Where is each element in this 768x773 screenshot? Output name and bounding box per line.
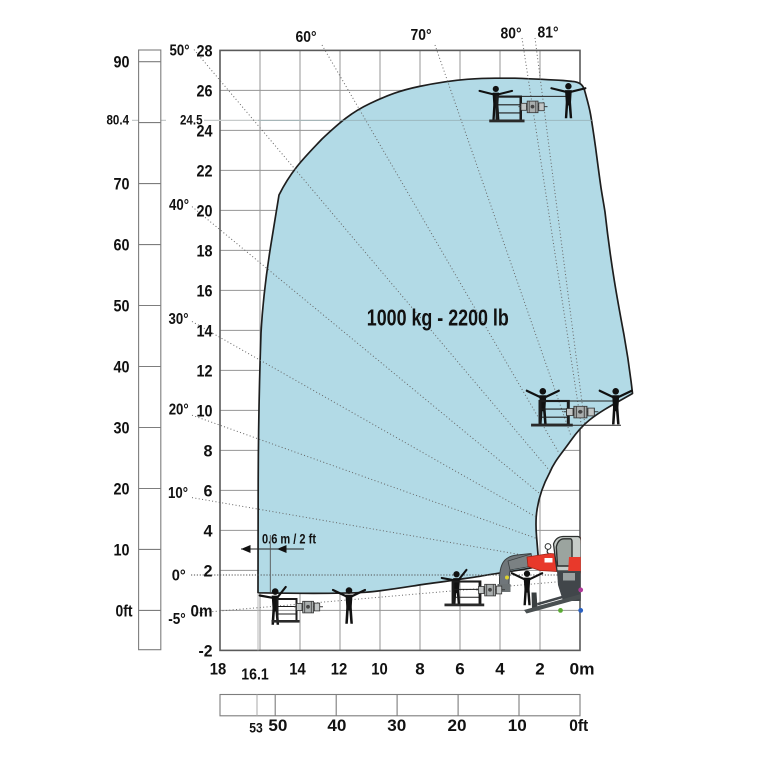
svg-text:12: 12 bbox=[331, 660, 348, 679]
svg-text:20: 20 bbox=[448, 716, 467, 735]
svg-text:2: 2 bbox=[204, 561, 213, 580]
svg-text:90: 90 bbox=[114, 53, 130, 72]
svg-text:0m: 0m bbox=[570, 660, 595, 679]
svg-text:-5°: -5° bbox=[168, 611, 186, 628]
svg-text:4: 4 bbox=[204, 521, 214, 540]
svg-text:0ft: 0ft bbox=[569, 716, 588, 735]
svg-text:10: 10 bbox=[508, 716, 527, 735]
svg-text:50°: 50° bbox=[170, 43, 190, 60]
svg-text:10: 10 bbox=[114, 540, 130, 559]
svg-text:20: 20 bbox=[114, 480, 130, 499]
svg-text:-2: -2 bbox=[199, 641, 213, 660]
svg-text:16: 16 bbox=[197, 281, 213, 300]
svg-text:40: 40 bbox=[114, 358, 130, 377]
svg-text:18: 18 bbox=[197, 241, 213, 260]
svg-text:18: 18 bbox=[210, 660, 227, 679]
svg-text:30: 30 bbox=[387, 716, 406, 735]
svg-text:70°: 70° bbox=[411, 27, 432, 44]
svg-text:1000 kg - 2200 lb: 1000 kg - 2200 lb bbox=[367, 305, 509, 331]
svg-text:4: 4 bbox=[495, 660, 505, 679]
svg-text:12: 12 bbox=[197, 361, 213, 380]
svg-text:80°: 80° bbox=[501, 26, 522, 43]
svg-text:2: 2 bbox=[535, 660, 544, 679]
svg-text:0ft: 0ft bbox=[116, 601, 133, 620]
svg-text:14: 14 bbox=[289, 660, 306, 679]
svg-text:14: 14 bbox=[197, 321, 213, 340]
svg-text:60: 60 bbox=[114, 236, 130, 255]
svg-text:40°: 40° bbox=[169, 197, 189, 214]
svg-text:16.1: 16.1 bbox=[241, 667, 269, 684]
svg-text:30°: 30° bbox=[169, 311, 189, 328]
svg-text:80.4: 80.4 bbox=[107, 113, 130, 128]
svg-text:22: 22 bbox=[197, 161, 213, 180]
svg-text:6: 6 bbox=[455, 660, 464, 679]
svg-text:24: 24 bbox=[197, 121, 213, 140]
svg-text:10: 10 bbox=[371, 660, 388, 679]
svg-text:26: 26 bbox=[197, 81, 213, 100]
svg-text:8: 8 bbox=[415, 660, 424, 679]
svg-text:20: 20 bbox=[197, 201, 213, 220]
svg-text:30: 30 bbox=[114, 419, 130, 438]
svg-text:50: 50 bbox=[114, 297, 130, 316]
svg-text:8: 8 bbox=[204, 441, 213, 460]
svg-text:0°: 0° bbox=[172, 567, 186, 584]
svg-text:10: 10 bbox=[197, 401, 213, 420]
svg-text:20°: 20° bbox=[169, 402, 189, 419]
svg-text:81°: 81° bbox=[538, 25, 559, 42]
svg-text:28: 28 bbox=[197, 41, 213, 60]
svg-text:53: 53 bbox=[249, 720, 263, 736]
svg-text:60°: 60° bbox=[296, 29, 317, 46]
svg-text:50: 50 bbox=[268, 716, 287, 735]
svg-text:6: 6 bbox=[204, 481, 213, 500]
svg-text:40: 40 bbox=[327, 716, 346, 735]
svg-text:10°: 10° bbox=[168, 485, 188, 502]
svg-text:70: 70 bbox=[114, 175, 130, 194]
svg-text:0m: 0m bbox=[191, 601, 213, 620]
